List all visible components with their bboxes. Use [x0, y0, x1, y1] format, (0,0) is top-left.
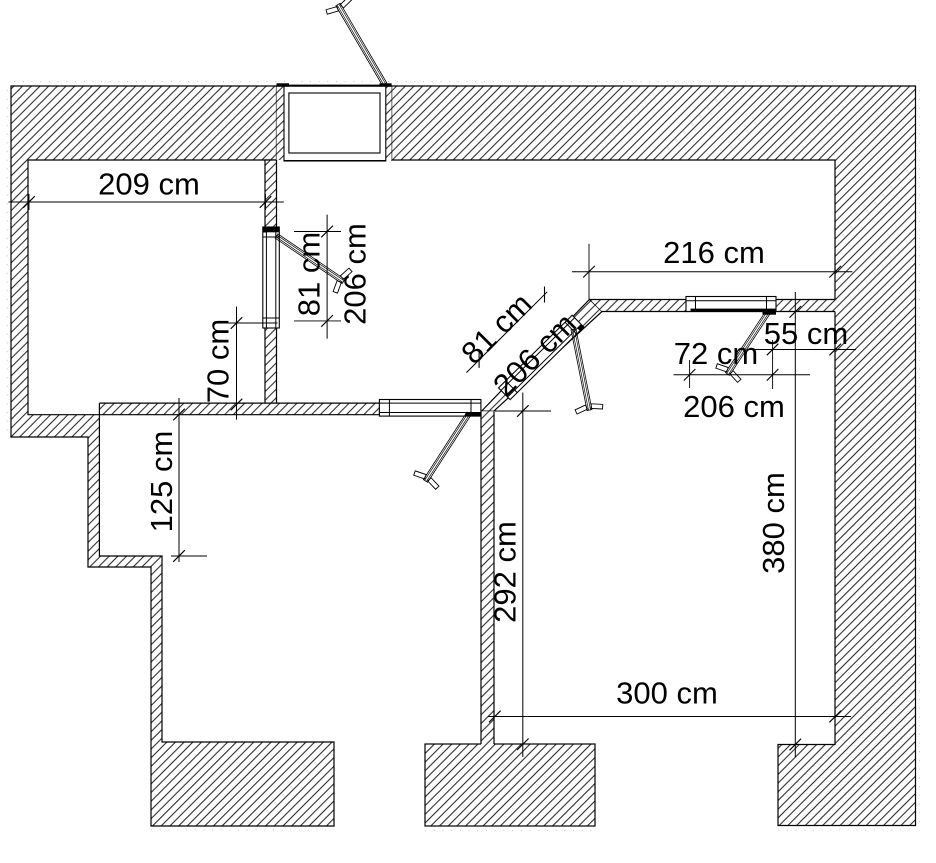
svg-text:81 cm: 81 cm [292, 232, 327, 316]
svg-text:70 cm: 70 cm [201, 319, 236, 403]
svg-text:72 cm: 72 cm [674, 336, 758, 371]
svg-text:206 cm: 206 cm [338, 223, 373, 325]
svg-text:300 cm: 300 cm [616, 676, 718, 711]
svg-text:209 cm: 209 cm [98, 167, 200, 202]
svg-text:380 cm: 380 cm [756, 472, 791, 574]
svg-text:55 cm: 55 cm [764, 316, 848, 351]
svg-text:206 cm: 206 cm [683, 389, 785, 424]
svg-text:125 cm: 125 cm [144, 431, 179, 533]
svg-text:216 cm: 216 cm [663, 235, 765, 270]
svg-text:292 cm: 292 cm [488, 521, 523, 623]
